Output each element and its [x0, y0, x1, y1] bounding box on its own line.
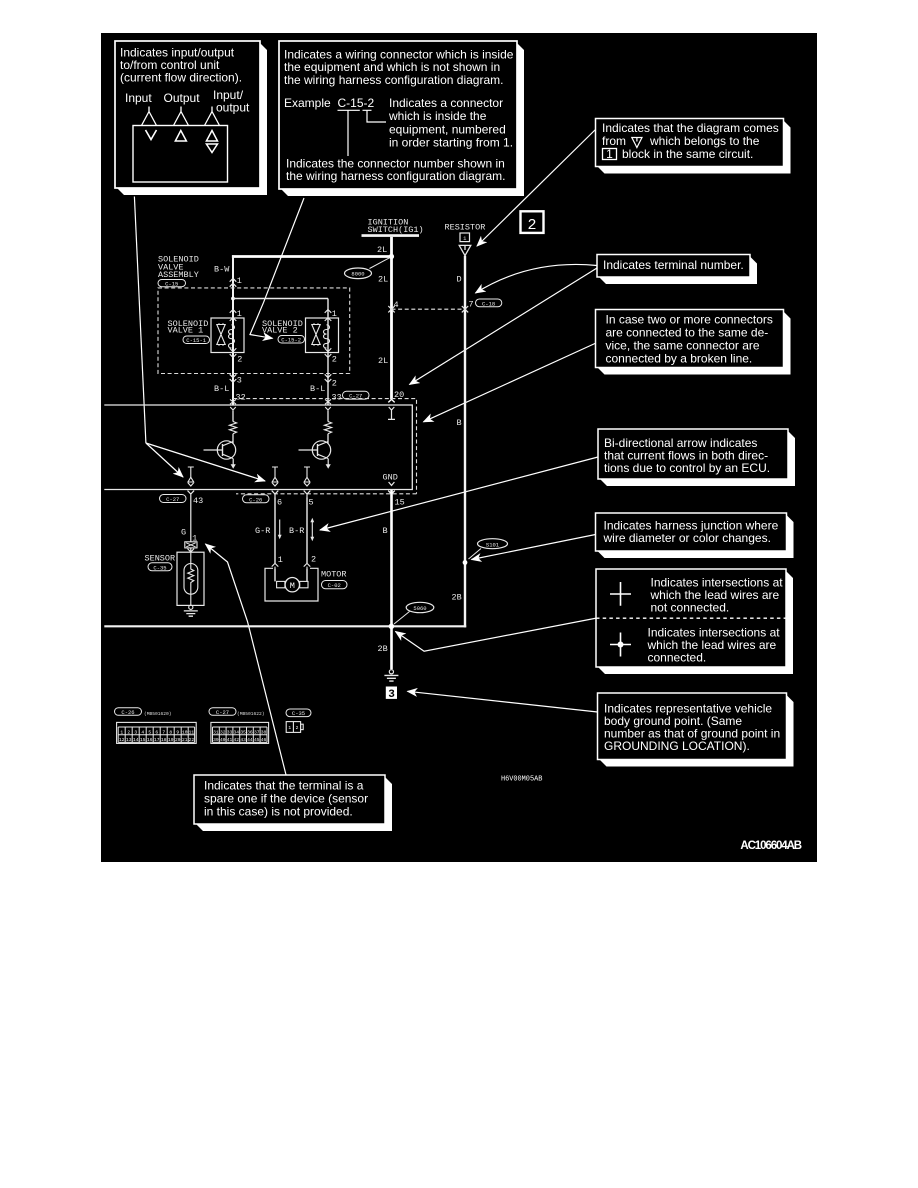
svg-text:2: 2 [527, 217, 536, 234]
svg-text:VALVE 2: VALVE 2 [262, 326, 298, 336]
svg-text:C-02: C-02 [328, 582, 341, 589]
svg-text:VALVE 1: VALVE 1 [168, 326, 204, 336]
svg-text:S101: S101 [486, 541, 500, 548]
svg-text:5: 5 [148, 729, 151, 735]
svg-text:1: 1 [237, 276, 242, 286]
svg-text:1: 1 [120, 729, 123, 735]
svg-text:41: 41 [227, 737, 233, 743]
svg-text:44: 44 [247, 737, 253, 743]
svg-text:which is inside the: which is inside the [388, 109, 487, 123]
svg-text:Indicates terminal number.: Indicates terminal number. [603, 258, 744, 272]
svg-text:in this case) is not provided.: in this case) is not provided. [204, 805, 353, 819]
svg-text:2: 2 [127, 729, 130, 735]
svg-text:17: 17 [154, 737, 160, 743]
svg-text:SENSOR: SENSOR [145, 554, 176, 564]
svg-text:6: 6 [155, 729, 158, 735]
svg-text:B-L: B-L [310, 384, 325, 394]
svg-text:M: M [290, 581, 295, 591]
svg-text:43: 43 [193, 496, 203, 506]
svg-text:C-15: C-15 [165, 280, 178, 287]
svg-text:16: 16 [147, 737, 153, 743]
svg-text:46: 46 [261, 737, 267, 743]
svg-text:C-15-1: C-15-1 [186, 337, 207, 344]
svg-text:vice, the same connector are: vice, the same connector are [606, 338, 760, 352]
svg-text:C-35: C-35 [292, 710, 305, 717]
svg-text:18: 18 [161, 737, 167, 743]
svg-text:12: 12 [119, 737, 125, 743]
svg-text:C-26: C-26 [249, 496, 262, 503]
svg-text:15: 15 [140, 737, 146, 743]
svg-text:38: 38 [261, 729, 267, 735]
svg-text:wire diameter or color changes: wire diameter or color changes. [603, 531, 771, 545]
svg-text:are connected to the same de-: are connected to the same de- [606, 325, 769, 339]
svg-text:GROUNDING LOCATION).: GROUNDING LOCATION). [604, 739, 750, 753]
svg-text:D: D [457, 275, 462, 285]
svg-text:33: 33 [227, 729, 233, 735]
svg-text:2: 2 [296, 725, 299, 731]
svg-text:33: 33 [332, 393, 342, 403]
svg-text:G-R: G-R [255, 526, 270, 536]
svg-text:the wiring harness configurati: the wiring harness configuration diagram… [284, 73, 503, 87]
svg-text:C-15-2: C-15-2 [281, 337, 301, 344]
svg-text:14: 14 [133, 737, 139, 743]
svg-text:GND: GND [383, 473, 398, 483]
svg-text:2: 2 [332, 379, 337, 389]
svg-text:31: 31 [213, 729, 219, 735]
svg-text:B-R: B-R [289, 526, 304, 536]
svg-text:35: 35 [240, 729, 246, 735]
svg-text:tions due to control by an ECU: tions due to control by an ECU. [604, 461, 770, 475]
svg-text:B: B [457, 418, 462, 428]
svg-text:B-L: B-L [214, 384, 229, 394]
svg-text:22: 22 [189, 737, 195, 743]
svg-text:equipment, numbered: equipment, numbered [389, 122, 506, 136]
svg-text:21: 21 [182, 737, 188, 743]
svg-text:2: 2 [332, 355, 337, 365]
svg-text:3: 3 [237, 376, 242, 386]
svg-text:13: 13 [126, 737, 132, 743]
svg-text:Example: Example [284, 96, 331, 110]
svg-text:C-26: C-26 [121, 709, 134, 716]
svg-text:Indicates that the terminal is: Indicates that the terminal is a [204, 779, 364, 793]
svg-text:In case two or more connectors: In case two or more connectors [606, 312, 773, 326]
svg-text:6: 6 [277, 498, 282, 508]
svg-text:Indicates that the diagram com: Indicates that the diagram comes [602, 121, 779, 135]
svg-text:(MB501620): (MB501620) [144, 711, 172, 717]
svg-text:(current flow direction).: (current flow direction). [120, 71, 242, 85]
svg-text:output: output [216, 101, 250, 115]
svg-text:2L: 2L [377, 245, 387, 255]
svg-text:36: 36 [247, 729, 253, 735]
svg-text:G: G [181, 528, 186, 538]
svg-text:32: 32 [236, 393, 246, 403]
svg-text:32: 32 [220, 729, 226, 735]
svg-text:MOTOR: MOTOR [321, 570, 347, 580]
svg-text:not connected.: not connected. [651, 601, 730, 615]
svg-text:2B: 2B [452, 593, 462, 603]
svg-text:RESISTOR: RESISTOR [445, 223, 486, 233]
svg-text:15: 15 [395, 498, 405, 508]
svg-text:3: 3 [134, 729, 137, 735]
svg-text:5060: 5060 [413, 605, 426, 612]
svg-text:B: B [383, 526, 388, 536]
svg-text:19: 19 [168, 737, 174, 743]
svg-text:SWITCH(IG1): SWITCH(IG1) [368, 225, 424, 235]
svg-text:4: 4 [141, 729, 144, 735]
svg-text:which belongs to the: which belongs to the [649, 134, 760, 148]
svg-text:40: 40 [220, 737, 226, 743]
svg-text:45: 45 [254, 737, 260, 743]
svg-text:C-27: C-27 [166, 496, 179, 503]
svg-text:Indicates a connector: Indicates a connector [389, 96, 503, 110]
svg-text:Input: Input [125, 91, 152, 105]
svg-text:7: 7 [469, 300, 474, 310]
svg-text:11: 11 [189, 729, 195, 735]
svg-text:5: 5 [309, 498, 314, 508]
svg-text:10: 10 [182, 729, 188, 735]
svg-text:42: 42 [234, 737, 240, 743]
svg-text:2: 2 [237, 355, 242, 365]
svg-text:H6V00M05AB: H6V00M05AB [501, 775, 542, 783]
svg-text:34: 34 [234, 729, 240, 735]
svg-text:connected.: connected. [648, 651, 707, 665]
svg-text:ASSEMBLY: ASSEMBLY [158, 270, 199, 280]
svg-text:C-15-2: C-15-2 [338, 96, 375, 110]
svg-text:C-27: C-27 [216, 709, 229, 716]
svg-text:8: 8 [169, 729, 172, 735]
svg-text:C-35: C-35 [153, 564, 166, 571]
svg-text:20: 20 [175, 737, 181, 743]
svg-text:Output: Output [164, 91, 201, 105]
svg-text:1: 1 [278, 555, 283, 565]
svg-text:7: 7 [162, 729, 165, 735]
svg-text:39: 39 [213, 737, 219, 743]
svg-text:8000: 8000 [351, 271, 364, 278]
svg-text:(MB501622): (MB501622) [237, 711, 265, 717]
svg-text:1: 1 [288, 725, 291, 731]
svg-text:9: 9 [176, 729, 179, 735]
svg-text:the wiring harness configurati: the wiring harness configuration diagram… [286, 169, 505, 183]
svg-text:2L: 2L [378, 275, 388, 285]
svg-text:1: 1 [606, 147, 613, 161]
svg-text:2L: 2L [378, 356, 388, 366]
svg-text:connected by a broken line.: connected by a broken line. [606, 351, 753, 365]
svg-text:2B: 2B [378, 644, 388, 654]
svg-text:37: 37 [254, 729, 260, 735]
svg-text:4: 4 [394, 300, 399, 310]
svg-text:in order starting from 1.: in order starting from 1. [389, 136, 513, 150]
svg-text:B-W: B-W [214, 265, 230, 275]
svg-text:43: 43 [240, 737, 246, 743]
svg-text:C-18: C-18 [482, 300, 495, 307]
svg-text:2: 2 [311, 555, 316, 565]
svg-text:3: 3 [388, 689, 395, 701]
svg-text:spare one if the device (senso: spare one if the device (sensor [204, 792, 368, 806]
svg-text:block in the same circuit.: block in the same circuit. [622, 147, 753, 161]
svg-text:AC106604AB: AC106604AB [740, 840, 801, 852]
